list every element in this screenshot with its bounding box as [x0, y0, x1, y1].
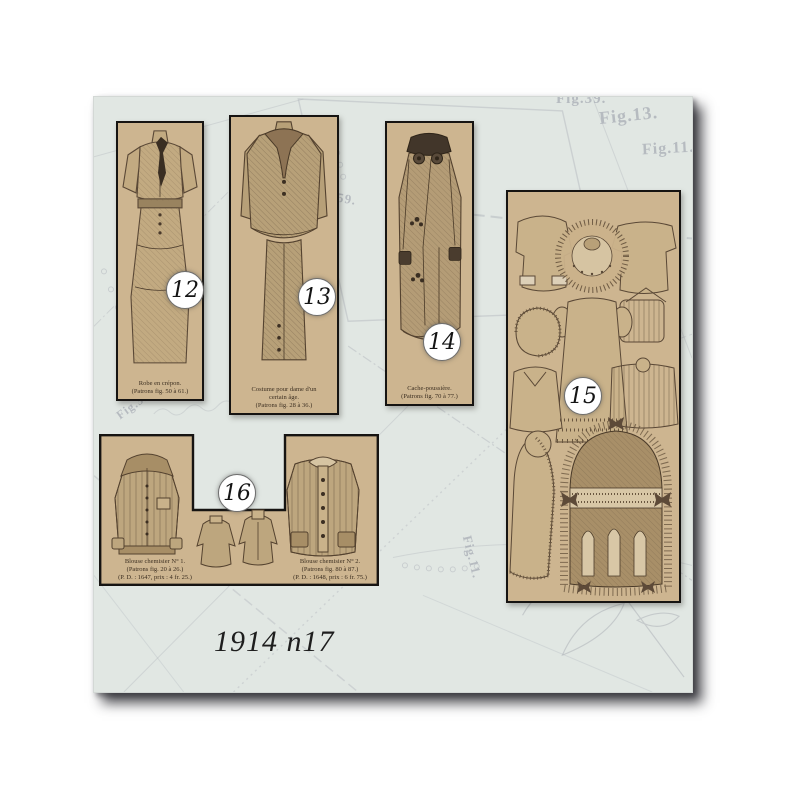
caption-line: (P. D. : 1647, prix : 4 fr. 25.)	[103, 574, 207, 582]
edition-label: 1914 n17	[214, 625, 335, 659]
suit-illustration	[231, 117, 337, 385]
pattern-panel-12: Robe en crépon. (Patrons fig. 50 à 61.)	[116, 121, 204, 401]
dress-illustration	[118, 123, 202, 379]
caption-line: Cache-poussière.	[389, 385, 470, 393]
pattern-panel-14: Cache-poussière. (Patrons fig. 70 à 77.)	[385, 121, 474, 406]
caption-line: (P. D. : 1648, prix : 6 fr. 75.)	[285, 574, 375, 582]
panel-caption: Costume pour dame d'un certain âge. (Pat…	[231, 385, 337, 413]
panel-caption: Robe en crépon. (Patrons fig. 50 à 61.)	[118, 379, 202, 399]
caption-line: Robe en crépon.	[120, 380, 200, 388]
item-number-badge-16: 16	[218, 474, 256, 512]
caption-line: Blouse chemisier N° 2.	[285, 558, 375, 566]
item-number-badge-13: 13	[298, 278, 336, 316]
caption-line: (Patrons fig. 28 à 36.)	[233, 402, 335, 410]
panel-caption: Blouse chemisier N° 2. (Patrons fig. 80 …	[285, 558, 375, 581]
caption-line: certain âge.	[233, 394, 335, 402]
item-number-badge-12: 12	[166, 271, 204, 309]
panel-caption: Cache-poussière. (Patrons fig. 70 à 77.)	[387, 384, 472, 404]
item-number-badge-15: 15	[564, 377, 602, 415]
fig-label: Fig.11.	[642, 139, 693, 160]
catalog-page: Fig.39. Fig.13. Fig.11. Fig.59. Fig.32. …	[93, 96, 693, 693]
panel-caption: Blouse chemisier N° 1. (Patrons fig. 20 …	[103, 558, 207, 581]
item-number-badge-14: 14	[423, 323, 461, 361]
caption-line: (Patrons fig. 80 à 87.)	[285, 566, 375, 574]
fig-label: Fig.39.	[556, 96, 606, 108]
caption-line: (Patrons fig. 20 à 26.)	[103, 566, 207, 574]
pattern-panel-13: Costume pour dame d'un certain âge. (Pat…	[229, 115, 339, 415]
caption-line: Blouse chemisier N° 1.	[103, 558, 207, 566]
caption-line: (Patrons fig. 50 à 61.)	[120, 388, 200, 396]
caption-line: (Patrons fig. 70 à 77.)	[389, 393, 470, 401]
caption-line: Costume pour dame d'un	[233, 386, 335, 394]
